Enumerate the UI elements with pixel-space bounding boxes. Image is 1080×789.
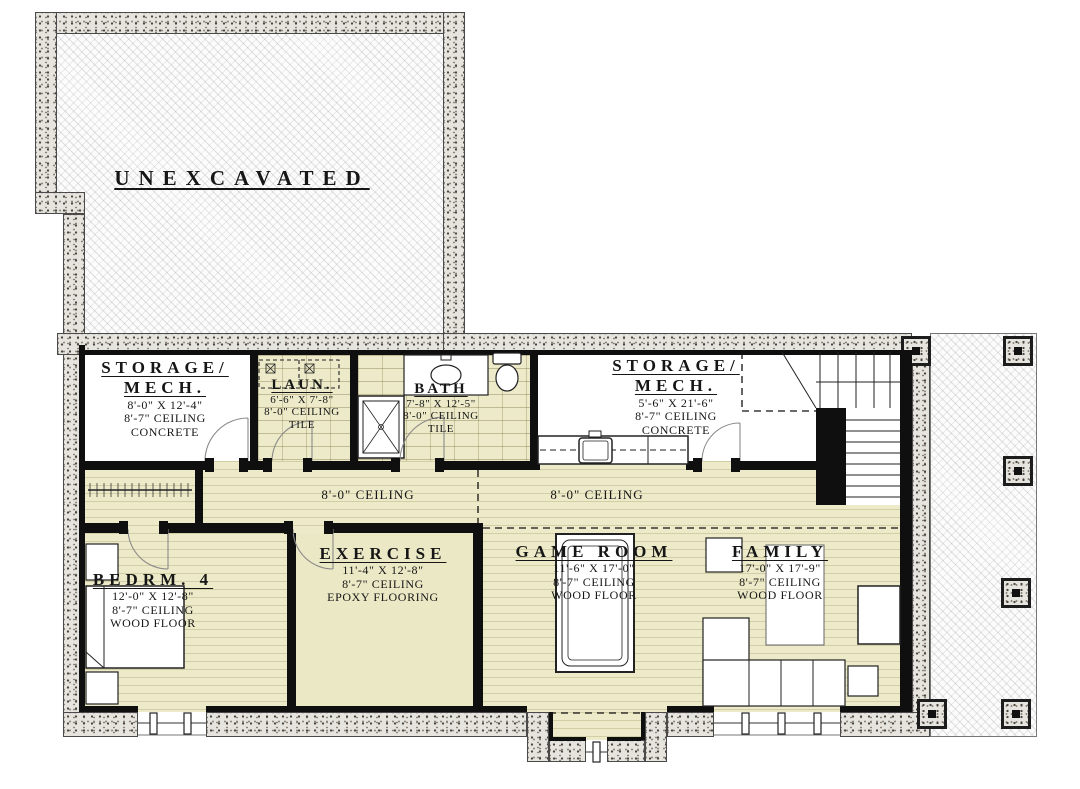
room-label-family: FAMILY 17'-0" X 17'-9" 8'-7" CEILING WOO… xyxy=(732,542,828,603)
room-label-exercise: EXERCISE 11'-4" X 12'-8" 8'-7" CEILING E… xyxy=(320,544,447,605)
window-bedroom xyxy=(138,713,206,735)
room-ceiling-family: 8'-7" CEILING xyxy=(732,576,828,589)
room-ceiling-bedroom4: 8'-7" CEILING xyxy=(93,604,213,617)
room-floor-laundry: TILE xyxy=(264,419,340,431)
room-floor-game-room: WOOD FLOOR xyxy=(516,589,673,602)
room-label-laundry: LAUN. 6'-6" X 7'-8" 8'-0" CEILING TILE xyxy=(264,376,340,431)
room-floor-family: WOOD FLOOR xyxy=(732,589,828,602)
door-jambs xyxy=(119,458,740,534)
room-name-exercise: EXERCISE xyxy=(320,544,447,564)
room-name-unexcavated: UNEXCAVATED xyxy=(114,166,369,191)
room-label-bedroom4: BEDRM. 4 12'-0" X 12'-8" 8'-7" CEILING W… xyxy=(93,570,213,631)
room-name-family: FAMILY xyxy=(732,542,828,562)
stairs xyxy=(782,352,900,497)
room-dims-storage1: 8'-0" X 12'-4" xyxy=(101,399,229,412)
room-dims-exercise: 11'-4" X 12'-8" xyxy=(320,564,447,577)
window-family xyxy=(714,713,840,735)
room-ceiling-bath: 8'-0" CEILING xyxy=(403,410,479,422)
room-floor-storage1: CONCRETE xyxy=(101,426,229,439)
hall-ceiling-label-right: 8'-0" CEILING xyxy=(550,487,643,503)
toilet-icon xyxy=(493,353,521,391)
room-floor-exercise: EPOXY FLOORING xyxy=(320,591,447,604)
basement-floor-plan: UNEXCAVATED STORAGE/ MECH. 8'-0" X 12'-4… xyxy=(0,0,1080,789)
room-name-bedroom4: BEDRM. 4 xyxy=(93,570,213,590)
room-label-storage-mech-1: STORAGE/ MECH. 8'-0" X 12'-4" 8'-7" CEIL… xyxy=(101,358,229,439)
room-ceiling-laundry: 8'-0" CEILING xyxy=(264,406,340,418)
room-floor-bedroom4: WOOD FLOOR xyxy=(93,617,213,630)
room-floor-bath: TILE xyxy=(403,423,479,435)
room-ceiling-storage2: 8'-7" CEILING xyxy=(612,410,740,423)
room-name-bath: BATH xyxy=(403,380,479,398)
room-label-bath: BATH 7'-8" X 12'-5" 8'-0" CEILING TILE xyxy=(403,380,479,435)
room-name-storage2-l1: STORAGE/ xyxy=(612,356,740,376)
room-dims-storage2: 5'-6" X 21'-6" xyxy=(612,397,740,410)
washer-dryer-burners xyxy=(266,364,314,373)
room-dims-bedroom4: 12'-0" X 12'-8" xyxy=(93,590,213,603)
room-ceiling-game-room: 8'-7" CEILING xyxy=(516,576,673,589)
room-dims-laundry: 6'-6" X 7'-8" xyxy=(264,394,340,406)
shower-icon xyxy=(358,396,404,458)
hall-ceiling-label-left: 8'-0" CEILING xyxy=(321,487,414,503)
closet-rod-icon xyxy=(88,483,192,497)
room-name-game-room: GAME ROOM xyxy=(516,542,673,562)
room-label-game-room: GAME ROOM 11'-6" X 17'-0" 8'-7" CEILING … xyxy=(516,542,673,603)
room-dims-family: 17'-0" X 17'-9" xyxy=(732,562,828,575)
room-ceiling-exercise: 8'-7" CEILING xyxy=(320,578,447,591)
bay-door xyxy=(586,742,607,762)
room-name-laundry: LAUN. xyxy=(264,376,340,394)
room-ceiling-storage1: 8'-7" CEILING xyxy=(101,412,229,425)
room-name-storage2-l2: MECH. xyxy=(612,376,740,396)
room-label-storage-mech-2: STORAGE/ MECH. 5'-6" X 21'-6" 8'-7" CEIL… xyxy=(612,356,740,437)
room-floor-storage2: CONCRETE xyxy=(612,424,740,437)
room-name-storage1-l2: MECH. xyxy=(101,378,229,398)
room-dims-game-room: 11'-6" X 17'-0" xyxy=(516,562,673,575)
room-label-unexcavated: UNEXCAVATED xyxy=(114,166,369,191)
room-dims-bath: 7'-8" X 12'-5" xyxy=(403,398,479,410)
room-name-storage1-l1: STORAGE/ xyxy=(101,358,229,378)
